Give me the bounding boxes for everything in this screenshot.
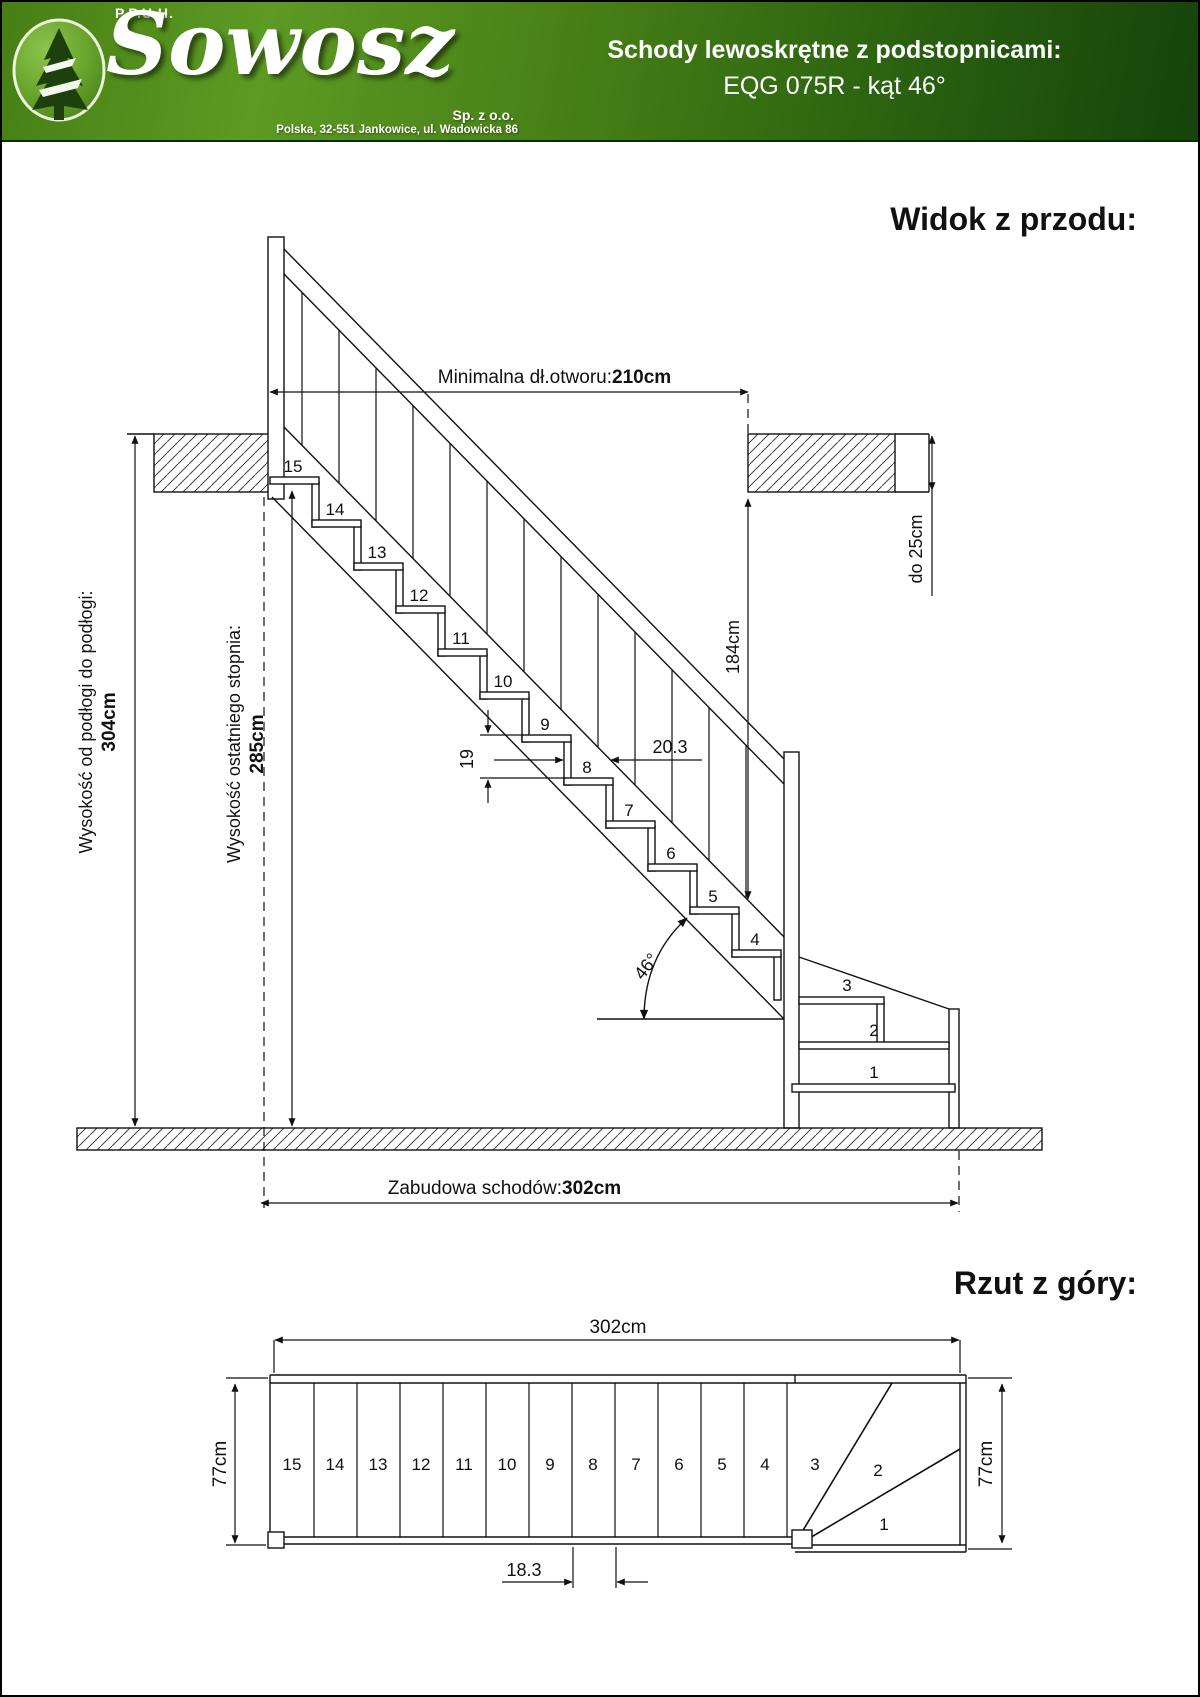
step-label: 1 <box>869 1063 878 1082</box>
top-newel-post <box>268 237 284 499</box>
step-label: 8 <box>588 1455 597 1474</box>
step-label: 9 <box>540 715 549 734</box>
step-label: 15 <box>284 457 303 476</box>
step-label: 11 <box>452 629 470 648</box>
last-step-height-value: 285cm <box>247 714 268 773</box>
staircase-steps <box>270 477 781 1000</box>
opening-dim-label: Minimalna dł.otworu: <box>438 367 612 388</box>
plan-view-heading: Rzut z góry: <box>954 1265 1137 1301</box>
step-label: 2 <box>869 1021 878 1040</box>
ceiling-thickness-value: do 25cm <box>906 514 926 583</box>
upper-floor-left-slab <box>127 434 269 492</box>
riser-height-value: 19 <box>457 749 477 769</box>
company-type: Sp. z o.o. <box>382 107 514 123</box>
starting-post <box>949 1009 959 1128</box>
step-label: 6 <box>674 1455 683 1474</box>
step-label: 14 <box>326 1455 345 1474</box>
step-label: 8 <box>582 758 591 777</box>
step-label: 3 <box>842 976 851 995</box>
step-label: 7 <box>631 1455 640 1474</box>
upper-floor-right-slab <box>748 434 929 492</box>
plan-length-value: 302cm <box>589 1317 646 1338</box>
product-title: Schody lewoskrętne z podstopnicami: EQG … <box>567 36 1102 101</box>
plan-left-post <box>268 1532 284 1548</box>
floor-to-floor-label: Wysokość od podłogi do podłogi: <box>76 590 96 853</box>
step-label: 9 <box>545 1455 554 1474</box>
step-label: 13 <box>369 1455 388 1474</box>
plan-tread-spacing-value: 18.3 <box>506 1560 541 1580</box>
step-label: 6 <box>666 844 675 863</box>
plan-view-labels: 302cm 77cm 77cm 18.3 15 14 13 12 11 10 9… <box>210 1317 997 1580</box>
step-label: 12 <box>410 586 429 605</box>
step-label: 12 <box>412 1455 431 1474</box>
tread-depth-value: 20.3 <box>652 737 687 757</box>
company-name: Sowosz <box>106 0 454 93</box>
company-address: Polska, 32-551 Jankowice, ul. Wadowicka … <box>242 124 518 136</box>
step-label: 4 <box>760 1455 769 1474</box>
step-label: 2 <box>873 1461 882 1480</box>
opening-dim-value: 210cm <box>612 367 671 388</box>
step-label: 5 <box>717 1455 726 1474</box>
ground-floor-slab <box>77 1128 1042 1150</box>
product-title-line1: Schody lewoskrętne z podstopnicami: <box>567 36 1102 65</box>
step-label: 14 <box>326 500 345 519</box>
step-label: 5 <box>708 887 717 906</box>
headroom-value: 184cm <box>723 620 743 674</box>
step-label: 15 <box>283 1455 302 1474</box>
header-banner: P.P.U.H. Sowosz Sp. z o.o. Polska, 32-55… <box>2 2 1198 142</box>
handrail <box>284 249 784 784</box>
company-logo <box>12 18 108 126</box>
step-label: 11 <box>455 1455 473 1474</box>
floor-to-floor-value: 304cm <box>99 692 120 751</box>
plan-newel-post <box>792 1530 812 1548</box>
step-label: 4 <box>750 930 759 949</box>
plan-width-left-value: 77cm <box>210 1441 231 1487</box>
footprint-label: Zabudowa schodów: <box>388 1178 562 1199</box>
step-label: 13 <box>368 543 387 562</box>
footprint-value: 302cm <box>562 1178 621 1199</box>
front-view-heading: Widok z przodu: <box>890 201 1137 237</box>
technical-drawing: Widok z przodu: Rzut z góry: <box>2 142 1200 1697</box>
step-label: 7 <box>624 801 633 820</box>
step-label: 10 <box>498 1455 517 1474</box>
angle-value: 46° <box>630 949 663 983</box>
plan-width-right-value: 77cm <box>976 1441 997 1487</box>
spec-sheet-page: P.P.U.H. Sowosz Sp. z o.o. Polska, 32-55… <box>0 0 1200 1697</box>
product-title-line2: EQG 075R - kąt 46° <box>567 72 1102 101</box>
step-label: 3 <box>810 1455 819 1474</box>
plan-view-step-numbers: 15 14 13 12 11 10 9 8 7 6 5 4 3 2 1 <box>283 1455 889 1534</box>
front-view-dimension-lines <box>135 392 958 1203</box>
bottom-newel-post <box>784 752 799 1128</box>
last-step-height-label: Wysokość ostatniego stopnia: <box>224 625 244 863</box>
step-label: 1 <box>879 1515 888 1534</box>
step-label: 10 <box>494 672 513 691</box>
